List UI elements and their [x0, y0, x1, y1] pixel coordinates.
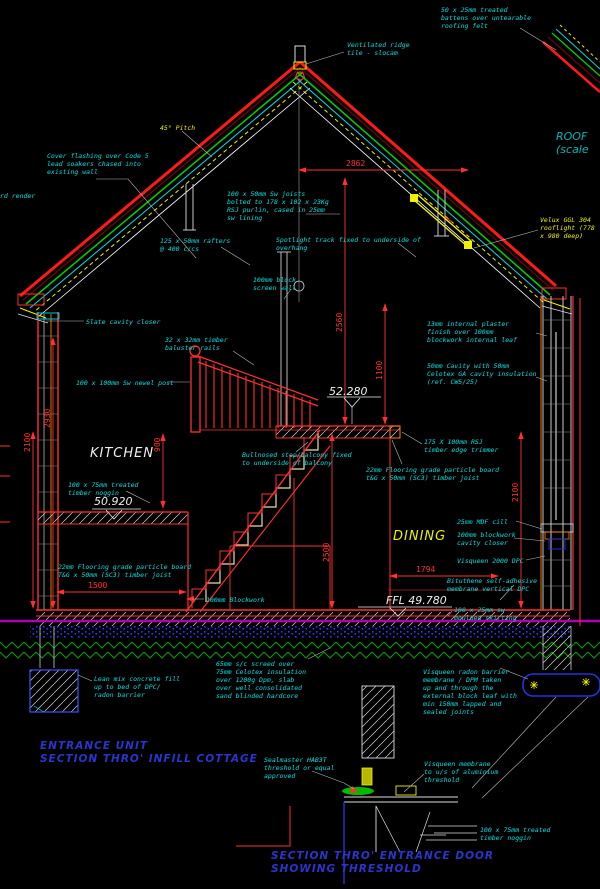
balustrade [190, 346, 318, 432]
staircase [186, 430, 330, 612]
drawing-geometry [0, 0, 600, 889]
left-cavity-wall [37, 312, 59, 610]
leader-lines [46, 52, 547, 792]
right-cavity-wall [541, 296, 573, 610]
roof-struts [183, 78, 449, 302]
cad-section-drawing: 50 x 25mm treated battens over untearabl… [0, 0, 600, 889]
ground-slab [0, 610, 600, 661]
roof-slopes [20, 62, 556, 317]
kitchen-floor [38, 512, 188, 610]
threshold-detail [236, 686, 477, 884]
foundations [30, 626, 571, 712]
stairwell-screen-wall [277, 252, 291, 426]
radon-barrier-detail [472, 674, 600, 798]
adjacent-roof-fragment [520, 25, 600, 92]
eaves-details [18, 288, 572, 323]
